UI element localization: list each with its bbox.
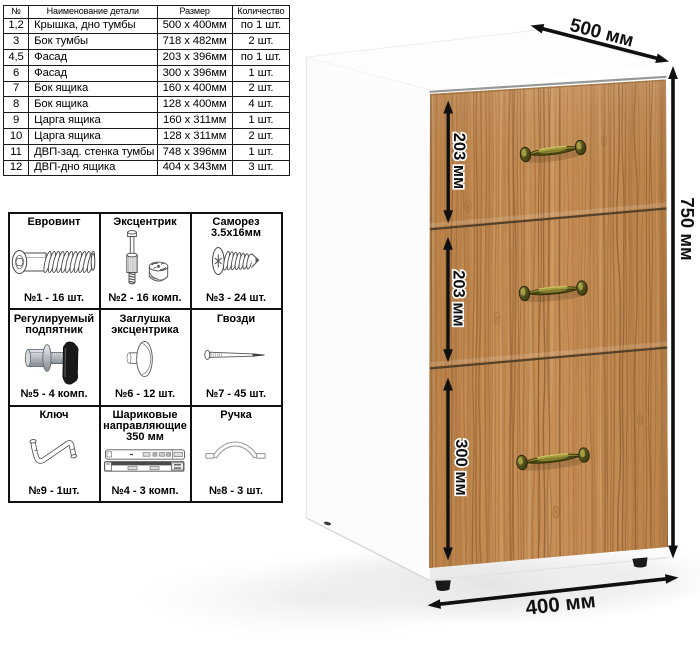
svg-text:203 мм: 203 мм xyxy=(450,270,468,327)
svg-text:750 мм: 750 мм xyxy=(677,197,698,260)
svg-text:300 мм: 300 мм xyxy=(452,439,470,496)
svg-text:203 мм: 203 мм xyxy=(450,133,468,190)
